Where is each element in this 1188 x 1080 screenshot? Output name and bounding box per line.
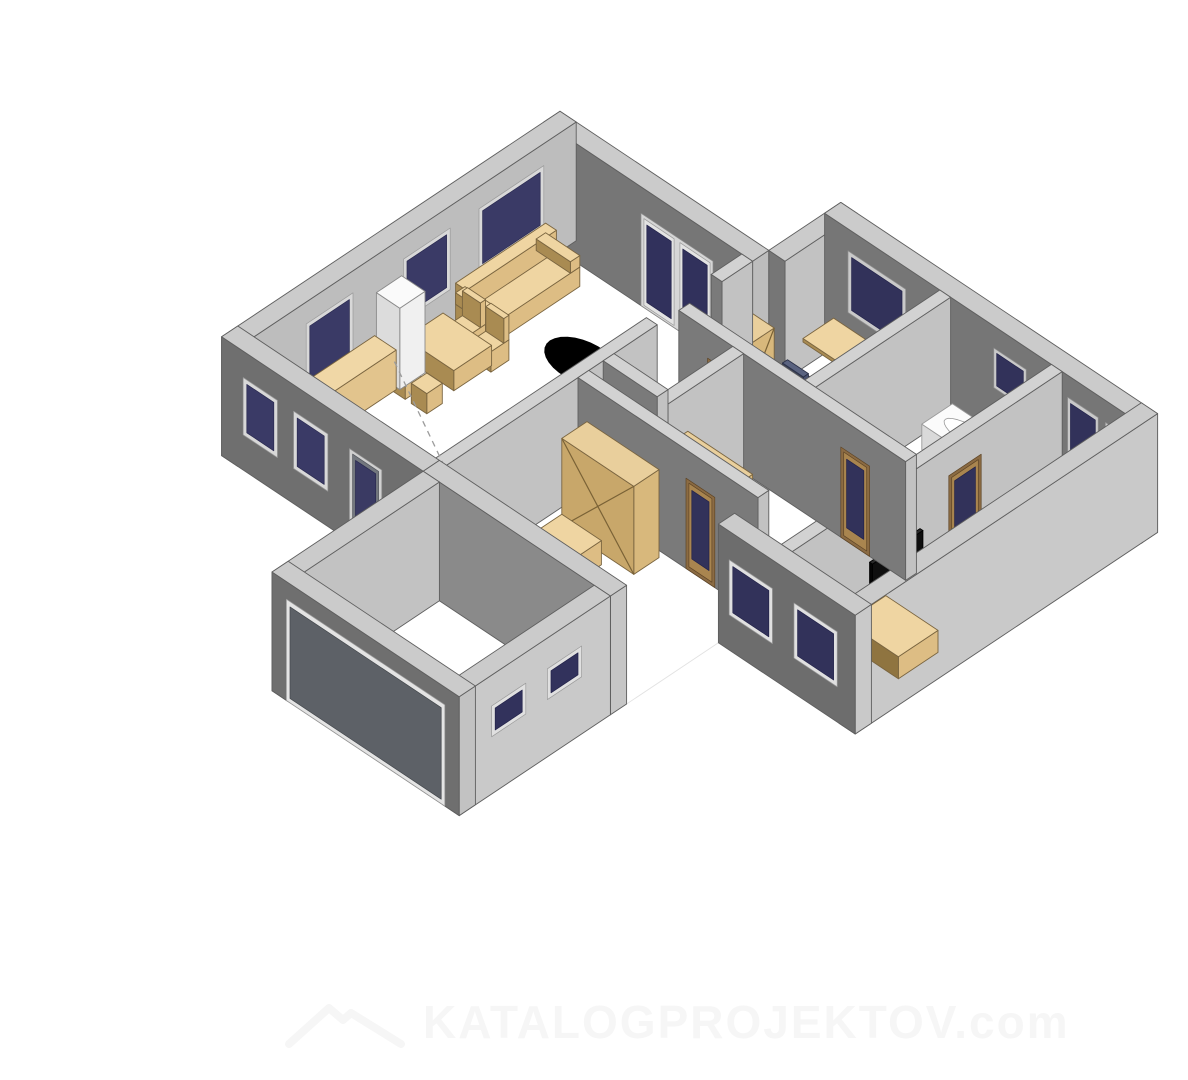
bedroom2-door-glass [692,490,709,570]
render-canvas: KATALOGPROJEKTOV.com [0,0,1188,1080]
bathroom-door-glass [847,459,864,539]
dining-chair-2-back-face-se [504,315,509,343]
wall-hall-ne-face-se [906,454,917,580]
watermark-text: KATALOGPROJEKTOV.com [423,995,1070,1049]
wall-se-wing-bottom-face-se [855,604,871,734]
wall-garage-back-face-se [610,585,626,715]
bedroom2-wardrobe-face-se [634,470,659,575]
watermark-house-logo [285,996,405,1048]
floorplan-render [0,0,1188,1080]
french-door-left-glass [647,225,671,319]
wall-garage-front-face-se [459,686,475,816]
dining-chair-1-back-face-se [480,300,485,328]
watermark: KATALOGPROJEKTOV.com [285,995,1070,1049]
